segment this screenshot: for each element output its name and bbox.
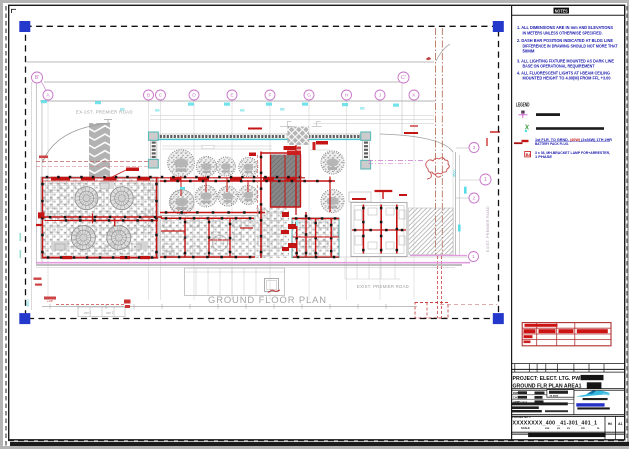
svg-text:H: H <box>345 93 349 99</box>
svg-text:EXIST. PREMIER ROAD: EXIST. PREMIER ROAD <box>357 284 409 289</box>
svg-text:2: 2 <box>473 196 476 202</box>
svg-text:BASE ON OPERATIONAL REQUIREMEN: BASE ON OPERATIONAL REQUIREMENT <box>523 64 595 69</box>
svg-text:C: C <box>159 93 163 99</box>
svg-text:xxx: xxx <box>545 427 550 430</box>
svg-text:NOTES: NOTES <box>555 8 568 13</box>
svg-text:xx xxxx: xx xxxx <box>550 394 559 397</box>
svg-text:B4: B4 <box>526 152 532 157</box>
svg-text:DIFFERENCE IN DRAWING SHOULD N: DIFFERENCE IN DRAWING SHOULD NOT MORE TH… <box>523 43 618 48</box>
svg-text:B: B <box>147 93 150 99</box>
svg-text:50MM: 50MM <box>523 48 535 53</box>
svg-text:C': C' <box>401 75 406 81</box>
svg-text:IN METERS UNLESS OTHERWISE SPE: IN METERS UNLESS OTHERWISE SPECIFIED. <box>523 30 603 35</box>
svg-text:xx: xx <box>567 427 570 430</box>
svg-text:B': B' <box>35 75 40 81</box>
svg-text:GROUND FLOOR PLAN: GROUND FLOOR PLAN <box>208 294 327 305</box>
svg-text:MOUNTED HEIGHT TO 4.00(M) FROM: MOUNTED HEIGHT TO 4.00(M) FROM FFL +3.00 <box>523 75 611 80</box>
svg-text:LEGEND: LEGEND <box>516 103 530 109</box>
svg-text:1 PHASE: 1 PHASE <box>535 154 552 159</box>
svg-text:1: 1 <box>472 254 475 260</box>
svg-text:SCALE: SCALE <box>521 426 530 430</box>
svg-text:4500: 4500 <box>453 169 457 177</box>
svg-text:3: 3 <box>473 145 476 151</box>
svg-text:H#: H# <box>608 422 612 426</box>
svg-text:A1: A1 <box>618 422 622 426</box>
svg-text:PHASES No. 1: PHASES No. 1 <box>512 415 531 419</box>
svg-text:D: D <box>192 93 196 99</box>
svg-text:4500: 4500 <box>26 299 30 307</box>
svg-text:1: 1 <box>484 177 487 183</box>
svg-text:AA: AA <box>581 426 585 430</box>
svg-text:XXXXXXXX_400 _41-301_401_1: XXXXXXXX_400 _41-301_401_1 <box>513 420 598 426</box>
svg-text:xx: xx <box>557 427 560 430</box>
svg-text:ls.: ls. <box>597 426 600 430</box>
svg-text:F: F <box>269 93 272 99</box>
svg-text:PROJECT: ELECT. LTG. PWR: PROJECT: ELECT. LTG. PWR <box>513 376 585 382</box>
svg-text:GROUND FLR PLAN AREA1: GROUND FLR PLAN AREA1 <box>513 384 582 390</box>
svg-text:G: G <box>307 93 311 99</box>
svg-text:xxx 2: xxx 2 <box>106 311 114 315</box>
svg-text:EXIST. PREMIER ROAD: EXIST. PREMIER ROAD <box>486 206 490 252</box>
svg-text:+CP: +CP <box>47 299 53 303</box>
svg-text:xxx 1: xxx 1 <box>84 311 92 315</box>
